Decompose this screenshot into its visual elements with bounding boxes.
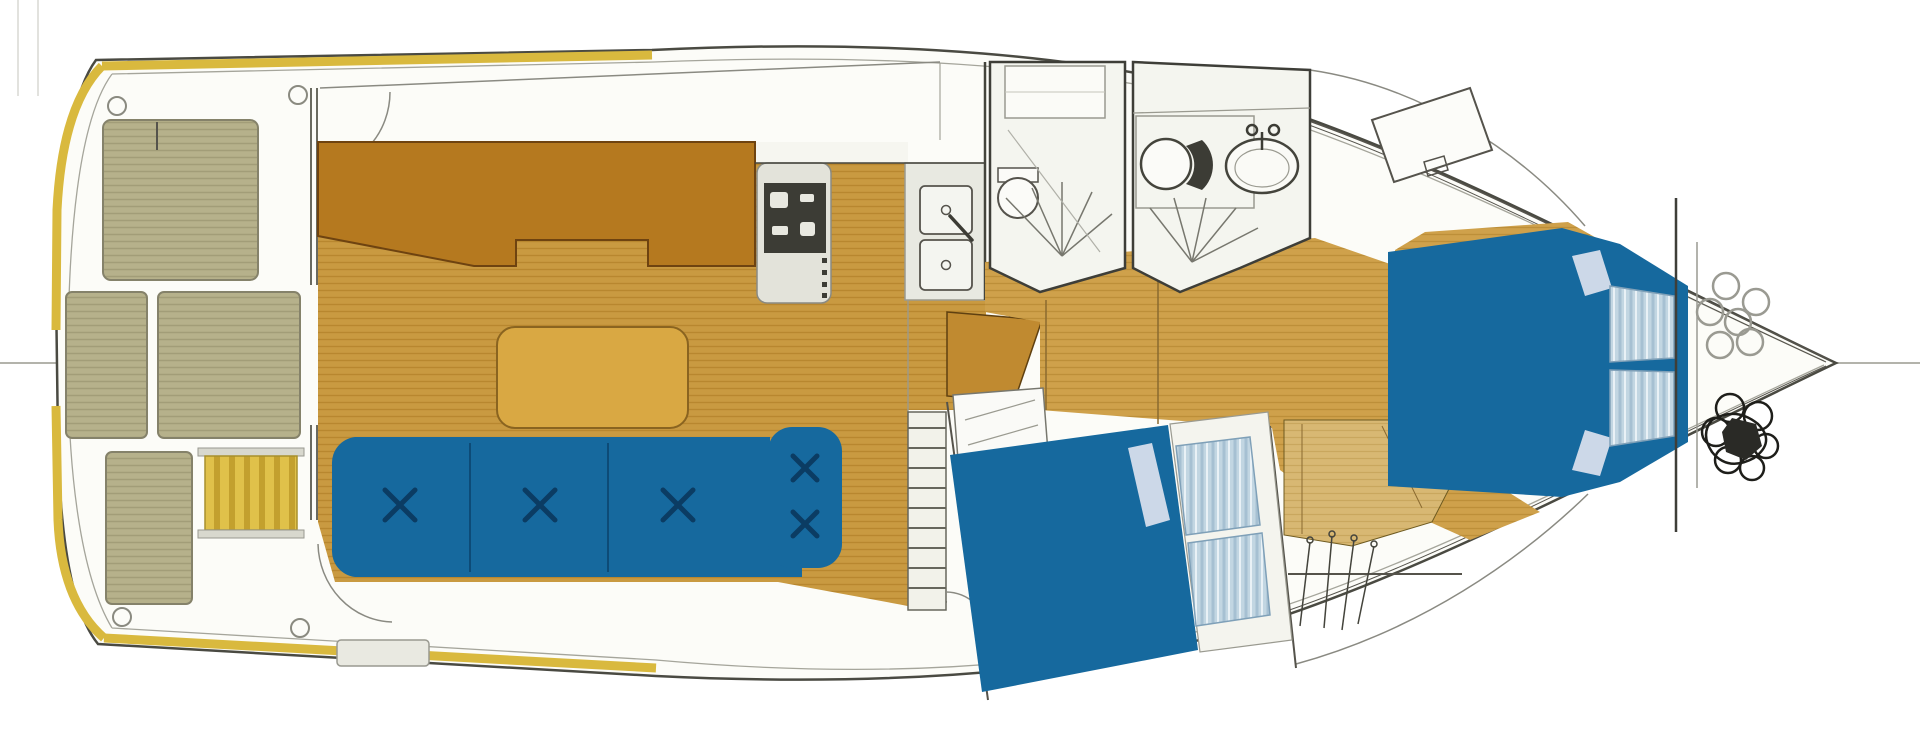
deck-hatch	[106, 452, 192, 604]
bed-pillow	[1176, 437, 1260, 535]
bow-deck-hatch	[1372, 88, 1492, 182]
deck-hatch	[158, 292, 300, 438]
toilet	[1141, 139, 1191, 189]
armchair	[768, 427, 842, 568]
toilet	[998, 178, 1038, 218]
boat-floorplan	[0, 0, 1920, 745]
deck-hatch-large	[103, 120, 258, 280]
mid-cabin	[947, 388, 1296, 700]
forward-cabin	[1372, 88, 1697, 532]
sink-basin	[920, 186, 972, 234]
vent-hatch-cap	[198, 530, 304, 538]
salon-table	[497, 327, 688, 428]
companionway-steps	[908, 412, 946, 610]
vent-hatch-cap	[198, 448, 304, 456]
galley-back-strip	[755, 142, 908, 163]
head-port	[990, 62, 1125, 292]
salon	[318, 62, 986, 606]
forward-berth	[1388, 228, 1688, 497]
mid-cabin-bed	[950, 425, 1198, 692]
bed-pillow	[1188, 533, 1270, 626]
deck-hatch	[66, 292, 147, 438]
sink-basin	[920, 240, 972, 290]
bed-pillow	[1610, 286, 1674, 362]
boarding-step	[337, 640, 429, 666]
engine-vent-hatch	[205, 456, 297, 530]
bed-pillow	[1610, 370, 1674, 446]
